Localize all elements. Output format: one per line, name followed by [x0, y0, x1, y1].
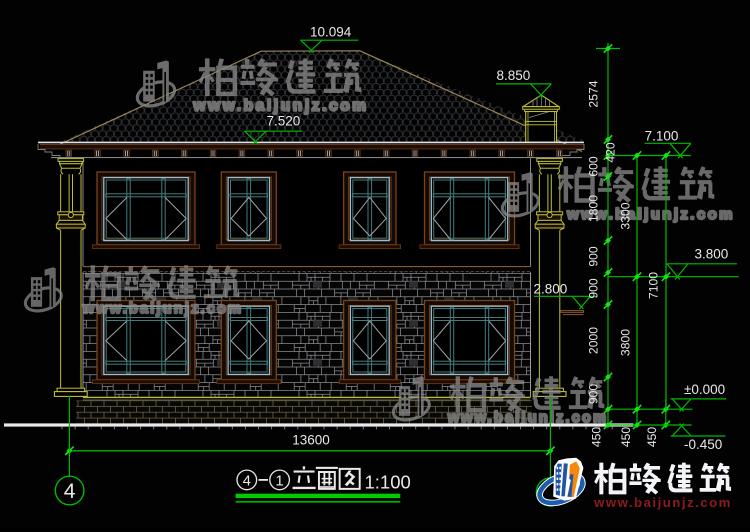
- svg-text:1: 1: [275, 472, 283, 489]
- svg-text:900: 900: [587, 384, 601, 405]
- svg-text:3300: 3300: [619, 202, 633, 229]
- svg-text:2000: 2000: [587, 327, 601, 354]
- svg-text:4: 4: [64, 480, 76, 503]
- svg-text:2.800: 2.800: [534, 282, 568, 297]
- svg-text:7.100: 7.100: [645, 128, 679, 143]
- svg-text:450: 450: [619, 427, 633, 448]
- svg-text:450: 450: [645, 427, 659, 448]
- svg-text:±0.000: ±0.000: [684, 382, 725, 397]
- svg-text:3800: 3800: [619, 329, 633, 356]
- svg-text:13600: 13600: [292, 433, 330, 448]
- svg-text:420: 420: [604, 142, 618, 163]
- svg-text:-0.450: -0.450: [684, 437, 722, 452]
- svg-text:8.850: 8.850: [497, 68, 531, 83]
- svg-text:www.baijunjz.com: www.baijunjz.com: [192, 98, 368, 115]
- svg-text:www.baijunjz.com: www.baijunjz.com: [593, 495, 732, 510]
- svg-text:7100: 7100: [647, 272, 661, 299]
- svg-text:1:100: 1:100: [365, 472, 411, 493]
- svg-text:7.520: 7.520: [267, 114, 301, 129]
- svg-text:www.baijunjz.com: www.baijunjz.com: [82, 301, 243, 317]
- svg-text:10.094: 10.094: [310, 25, 352, 40]
- svg-text:4: 4: [243, 472, 251, 489]
- svg-text:900: 900: [587, 246, 601, 267]
- svg-text:600: 600: [587, 156, 601, 177]
- svg-text:450: 450: [590, 427, 604, 448]
- svg-text:1800: 1800: [587, 195, 601, 222]
- svg-text:2574: 2574: [587, 80, 601, 107]
- svg-text:3.800: 3.800: [695, 247, 729, 262]
- svg-text:900: 900: [587, 278, 601, 299]
